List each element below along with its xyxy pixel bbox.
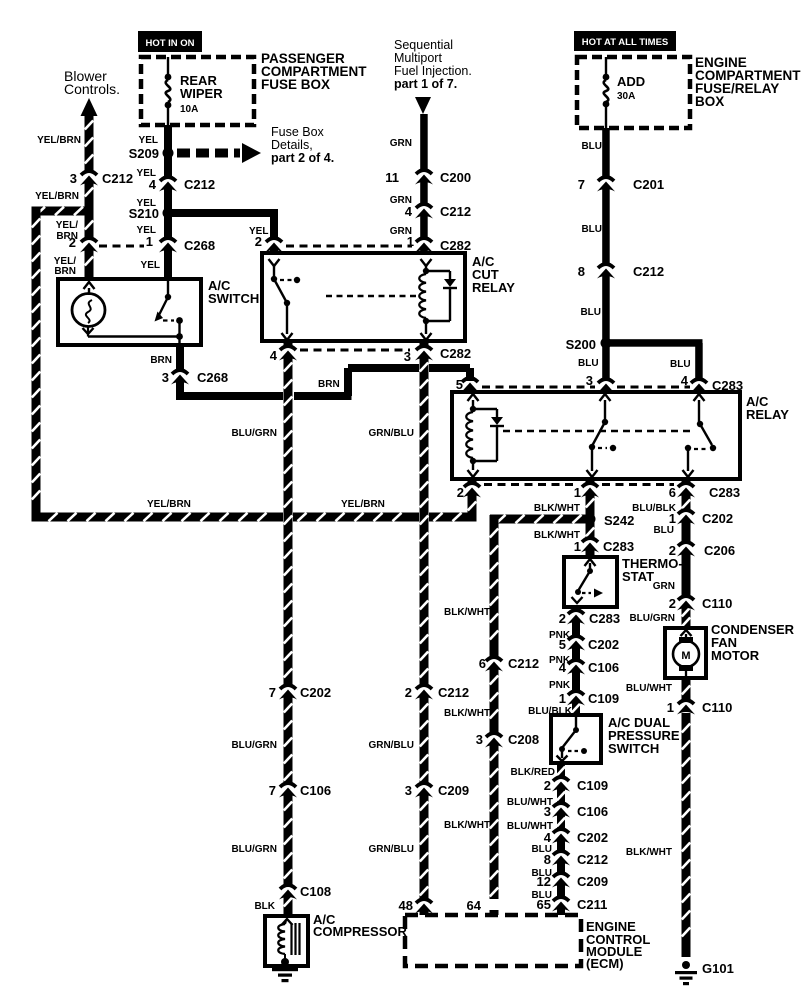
svg-text:C283: C283 — [589, 611, 620, 626]
svg-text:YEL: YEL — [139, 135, 158, 146]
svg-text:C209: C209 — [577, 874, 608, 889]
svg-text:BLK/WHT: BLK/WHT — [626, 847, 672, 858]
svg-text:3: 3 — [544, 804, 551, 819]
svg-text:BLK: BLK — [254, 901, 275, 912]
svg-text:C206: C206 — [704, 543, 735, 558]
svg-text:C108: C108 — [300, 884, 331, 899]
svg-text:BRN: BRN — [318, 379, 340, 390]
svg-text:2: 2 — [559, 611, 566, 626]
svg-text:C208: C208 — [508, 732, 539, 747]
svg-text:4: 4 — [405, 204, 413, 219]
svg-text:BLU/GRN: BLU/GRN — [231, 844, 277, 855]
svg-text:30A: 30A — [617, 91, 635, 102]
svg-text:C212: C212 — [440, 204, 471, 219]
svg-text:48: 48 — [399, 898, 413, 913]
svg-text:C268: C268 — [197, 370, 228, 385]
svg-text:Controls.: Controls. — [64, 81, 120, 97]
svg-text:BLU/GRN: BLU/GRN — [629, 613, 675, 624]
svg-text:2: 2 — [544, 778, 551, 793]
svg-text:COMPRESSOR: COMPRESSOR — [313, 924, 408, 939]
svg-text:C282: C282 — [440, 238, 471, 253]
svg-text:BRN: BRN — [150, 355, 172, 366]
svg-text:3: 3 — [162, 370, 169, 385]
svg-text:C110: C110 — [702, 700, 732, 715]
svg-text:GRN/BLU: GRN/BLU — [368, 844, 414, 855]
svg-text:G101: G101 — [702, 961, 734, 976]
svg-text:BOX: BOX — [695, 94, 724, 109]
svg-text:Details,: Details, — [271, 138, 313, 152]
svg-text:C212: C212 — [438, 685, 469, 700]
svg-text:1: 1 — [559, 691, 566, 706]
svg-text:C201: C201 — [633, 177, 664, 192]
svg-text:S210: S210 — [129, 206, 159, 221]
svg-text:BLU: BLU — [670, 359, 691, 370]
svg-text:part 1 of 7.: part 1 of 7. — [394, 77, 457, 91]
svg-text:BLU: BLU — [581, 224, 602, 235]
svg-text:BRN: BRN — [54, 266, 76, 277]
svg-text:C109: C109 — [588, 691, 619, 706]
svg-text:S200: S200 — [566, 337, 596, 352]
svg-text:Sequential: Sequential — [394, 38, 453, 52]
svg-text:C212: C212 — [633, 264, 664, 279]
svg-text:C202: C202 — [577, 830, 608, 845]
svg-text:YEL/BRN: YEL/BRN — [341, 499, 385, 510]
svg-text:RELAY: RELAY — [746, 407, 789, 422]
svg-text:12: 12 — [537, 874, 551, 889]
svg-text:C212: C212 — [508, 656, 539, 671]
svg-text:2: 2 — [669, 543, 676, 558]
svg-text:4: 4 — [544, 830, 552, 845]
svg-text:4: 4 — [559, 660, 567, 675]
svg-text:RELAY: RELAY — [472, 280, 515, 295]
svg-text:GRN/BLU: GRN/BLU — [368, 428, 414, 439]
svg-text:2: 2 — [457, 485, 464, 500]
svg-text:8: 8 — [578, 264, 585, 279]
svg-text:C268: C268 — [184, 238, 215, 253]
svg-text:Fuel Injection.: Fuel Injection. — [394, 64, 472, 78]
svg-text:part 2 of 4.: part 2 of 4. — [271, 151, 334, 165]
svg-text:SWITCH: SWITCH — [208, 291, 259, 306]
svg-text:HOT IN ON: HOT IN ON — [145, 38, 194, 49]
svg-text:M: M — [681, 650, 690, 662]
svg-text:BLK/WHT: BLK/WHT — [444, 708, 490, 719]
svg-text:4: 4 — [149, 177, 157, 192]
svg-text:C202: C202 — [702, 511, 733, 526]
svg-text:1: 1 — [407, 234, 414, 249]
svg-text:HOT AT ALL TIMES: HOT AT ALL TIMES — [582, 37, 669, 48]
svg-text:C211: C211 — [577, 897, 607, 912]
svg-text:2: 2 — [69, 235, 76, 250]
svg-text:1: 1 — [667, 700, 674, 715]
svg-text:C212: C212 — [577, 852, 608, 867]
svg-text:2: 2 — [405, 685, 412, 700]
svg-text:64: 64 — [467, 898, 482, 913]
svg-text:(ECM): (ECM) — [586, 956, 624, 971]
svg-text:BLK/WHT: BLK/WHT — [444, 607, 490, 618]
svg-text:BLU: BLU — [581, 141, 602, 152]
svg-text:4: 4 — [270, 348, 278, 363]
svg-text:C283: C283 — [709, 485, 740, 500]
svg-text:YEL/BRN: YEL/BRN — [35, 191, 79, 202]
svg-text:5: 5 — [456, 377, 463, 392]
svg-text:5: 5 — [559, 637, 566, 652]
svg-text:C109: C109 — [577, 778, 608, 793]
svg-text:7: 7 — [269, 783, 276, 798]
svg-text:Fuse Box: Fuse Box — [271, 125, 325, 139]
svg-text:YEL/BRN: YEL/BRN — [147, 499, 191, 510]
svg-text:BLU/GRN: BLU/GRN — [231, 740, 277, 751]
svg-text:BLU/GRN: BLU/GRN — [231, 428, 277, 439]
svg-text:BLK/WHT: BLK/WHT — [444, 820, 490, 831]
svg-text:3: 3 — [70, 171, 77, 186]
svg-text:C202: C202 — [588, 637, 619, 652]
svg-text:7: 7 — [269, 685, 276, 700]
svg-text:C212: C212 — [102, 171, 133, 186]
svg-text:Multiport: Multiport — [394, 51, 442, 65]
svg-text:FUSE BOX: FUSE BOX — [261, 77, 330, 92]
svg-text:BLK/WHT: BLK/WHT — [534, 503, 580, 514]
svg-text:YEL/: YEL/ — [56, 220, 78, 231]
svg-text:6: 6 — [669, 485, 676, 500]
svg-text:C282: C282 — [440, 346, 471, 361]
svg-text:BLU: BLU — [578, 358, 599, 369]
svg-text:11: 11 — [385, 170, 399, 185]
svg-text:C106: C106 — [588, 660, 619, 675]
svg-text:3: 3 — [405, 783, 412, 798]
svg-text:6: 6 — [479, 656, 486, 671]
svg-text:C209: C209 — [438, 783, 469, 798]
svg-text:3: 3 — [586, 373, 593, 388]
svg-text:ADD: ADD — [617, 74, 645, 89]
svg-text:GRN/BLU: GRN/BLU — [368, 740, 414, 751]
svg-text:S209: S209 — [129, 146, 159, 161]
svg-text:C202: C202 — [300, 685, 331, 700]
svg-text:GRN: GRN — [390, 138, 412, 149]
svg-text:WIPER: WIPER — [180, 86, 223, 101]
svg-text:10A: 10A — [180, 104, 198, 115]
svg-text:YEL: YEL — [141, 260, 160, 271]
svg-text:MOTOR: MOTOR — [711, 648, 760, 663]
svg-text:C283: C283 — [603, 539, 634, 554]
svg-text:65: 65 — [537, 897, 551, 912]
svg-text:2: 2 — [255, 234, 262, 249]
svg-text:GRN: GRN — [653, 581, 675, 592]
svg-text:PNK: PNK — [549, 680, 571, 691]
svg-text:3: 3 — [404, 349, 411, 364]
svg-text:2: 2 — [669, 596, 676, 611]
svg-text:3: 3 — [476, 732, 483, 747]
svg-text:BLK/RED: BLK/RED — [511, 767, 555, 778]
svg-text:1: 1 — [574, 539, 581, 554]
svg-text:8: 8 — [544, 852, 551, 867]
svg-text:YEL/BRN: YEL/BRN — [37, 135, 81, 146]
svg-text:BLU: BLU — [653, 525, 674, 536]
svg-text:1: 1 — [669, 511, 676, 526]
svg-text:S242: S242 — [604, 513, 634, 528]
svg-text:C212: C212 — [184, 177, 215, 192]
svg-text:BLU: BLU — [580, 307, 601, 318]
svg-text:BLU/WHT: BLU/WHT — [626, 683, 672, 694]
svg-text:C106: C106 — [300, 783, 331, 798]
svg-text:1: 1 — [146, 234, 153, 249]
svg-text:1: 1 — [574, 485, 581, 500]
svg-text:7: 7 — [578, 177, 585, 192]
svg-text:SWITCH: SWITCH — [608, 741, 659, 756]
svg-text:C110: C110 — [702, 596, 732, 611]
svg-text:4: 4 — [681, 373, 689, 388]
svg-text:STAT: STAT — [622, 569, 654, 584]
svg-text:C200: C200 — [440, 170, 471, 185]
svg-text:C106: C106 — [577, 804, 608, 819]
